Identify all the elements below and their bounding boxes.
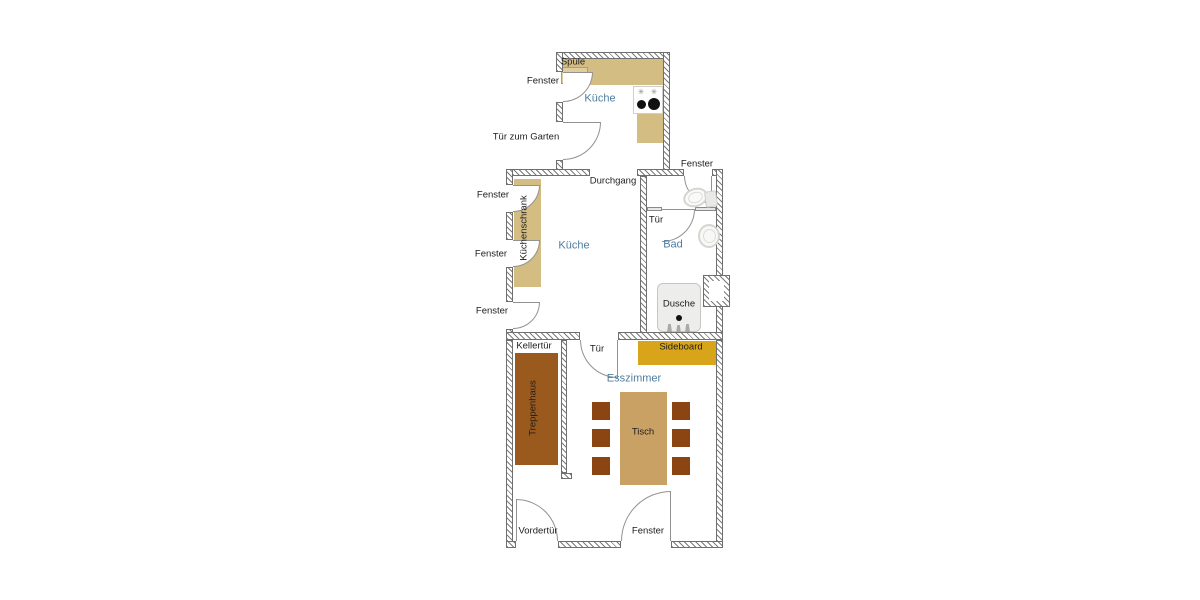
wall-segment bbox=[640, 176, 647, 333]
label-fenster-unten: Fenster bbox=[632, 526, 664, 536]
label-kueche: Küche bbox=[558, 241, 589, 252]
wall-segment bbox=[716, 340, 723, 548]
wall-segment bbox=[637, 169, 684, 176]
window-swing-arc bbox=[513, 302, 540, 329]
wall-segment bbox=[506, 332, 580, 340]
wall-segment bbox=[695, 207, 716, 211]
label-fenster-2: Fenster bbox=[475, 249, 507, 259]
wall-segment bbox=[556, 102, 563, 122]
wall-segment bbox=[506, 267, 513, 302]
chair bbox=[672, 429, 690, 447]
label-fenster-annex: Fenster bbox=[527, 76, 559, 86]
dining-table bbox=[620, 392, 667, 485]
burner-icon bbox=[637, 100, 646, 109]
wall-segment bbox=[716, 169, 723, 340]
washbasin-inner bbox=[703, 229, 716, 243]
label-spuele: Spüle bbox=[561, 57, 585, 67]
shower-drain-icon bbox=[676, 315, 682, 321]
label-esszimmer: Esszimmer bbox=[607, 374, 661, 385]
toilet-cistern bbox=[704, 190, 718, 208]
label-fenster-3: Fenster bbox=[476, 306, 508, 316]
wall-segment bbox=[663, 52, 670, 176]
burner-icon: ✳ bbox=[638, 88, 645, 97]
label-fenster-1: Fenster bbox=[477, 190, 509, 200]
bath-door-swing-arc bbox=[662, 209, 695, 242]
wall-segment bbox=[647, 207, 662, 211]
label-vordertuer: Vordertür bbox=[518, 526, 557, 536]
label-treppenhaus: Treppenhaus bbox=[528, 380, 538, 436]
label-kuechenschrank: Küchenschrank bbox=[519, 195, 529, 260]
wall-segment bbox=[561, 340, 567, 473]
label-sideboard: Sideboard bbox=[659, 342, 702, 352]
wall-segment bbox=[558, 541, 621, 548]
chair bbox=[592, 457, 610, 475]
wall-segment bbox=[671, 541, 723, 548]
chair bbox=[672, 457, 690, 475]
chair bbox=[592, 402, 610, 420]
chair bbox=[672, 402, 690, 420]
wall-segment bbox=[506, 340, 513, 548]
wall-segment bbox=[506, 169, 513, 185]
wall-segment bbox=[506, 541, 516, 548]
label-kueche-annex: Küche bbox=[584, 94, 615, 105]
wall-segment bbox=[618, 332, 723, 340]
label-kellertuer: Kellertür bbox=[516, 341, 551, 351]
kitchen-counter-right bbox=[637, 114, 663, 143]
wall-segment bbox=[506, 169, 590, 176]
chair bbox=[592, 429, 610, 447]
burner-icon bbox=[648, 98, 660, 110]
wall-segment bbox=[506, 212, 513, 240]
label-dusche: Dusche bbox=[663, 299, 695, 309]
wall-segment bbox=[561, 473, 572, 479]
label-bad: Bad bbox=[663, 240, 683, 251]
label-tuer-esszimmer: Tür bbox=[590, 344, 604, 354]
label-tisch: Tisch bbox=[632, 427, 654, 437]
wall-niche-interior bbox=[709, 281, 724, 301]
label-tuer-garten: Tür zum Garten bbox=[493, 132, 560, 142]
burner-icon: ✳ bbox=[651, 88, 658, 97]
garden-door-swing-arc bbox=[563, 122, 601, 160]
label-durchgang: Durchgang bbox=[590, 176, 636, 186]
label-fenster-bad: Fenster bbox=[681, 159, 713, 169]
floor-plan: ✳ ✳ bbox=[0, 0, 1200, 600]
label-tuer-bad: Tür bbox=[649, 215, 663, 225]
